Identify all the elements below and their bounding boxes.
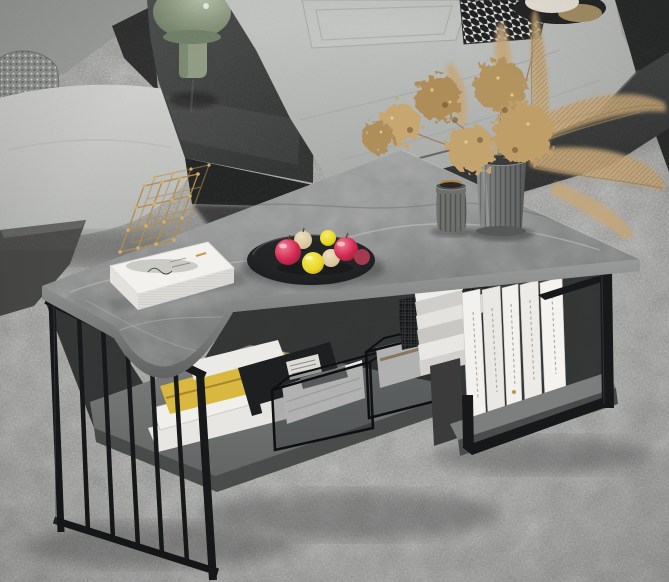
vignette [0,0,669,582]
photo-scene [0,0,669,582]
living-room-photo [0,0,669,582]
